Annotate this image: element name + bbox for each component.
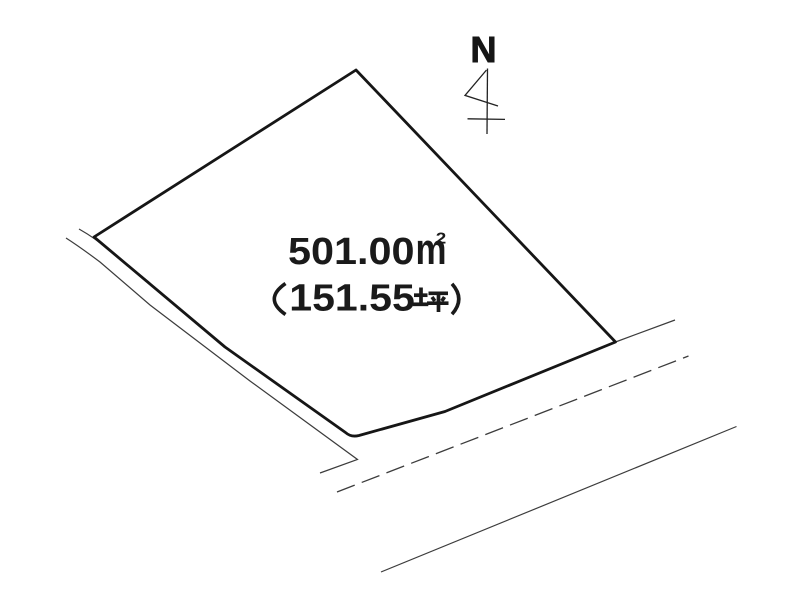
svg-text:151.55: 151.55 xyxy=(289,278,415,320)
svg-text:2: 2 xyxy=(436,231,447,248)
svg-text:501.00: 501.00 xyxy=(288,231,415,273)
svg-text:N: N xyxy=(471,29,497,70)
